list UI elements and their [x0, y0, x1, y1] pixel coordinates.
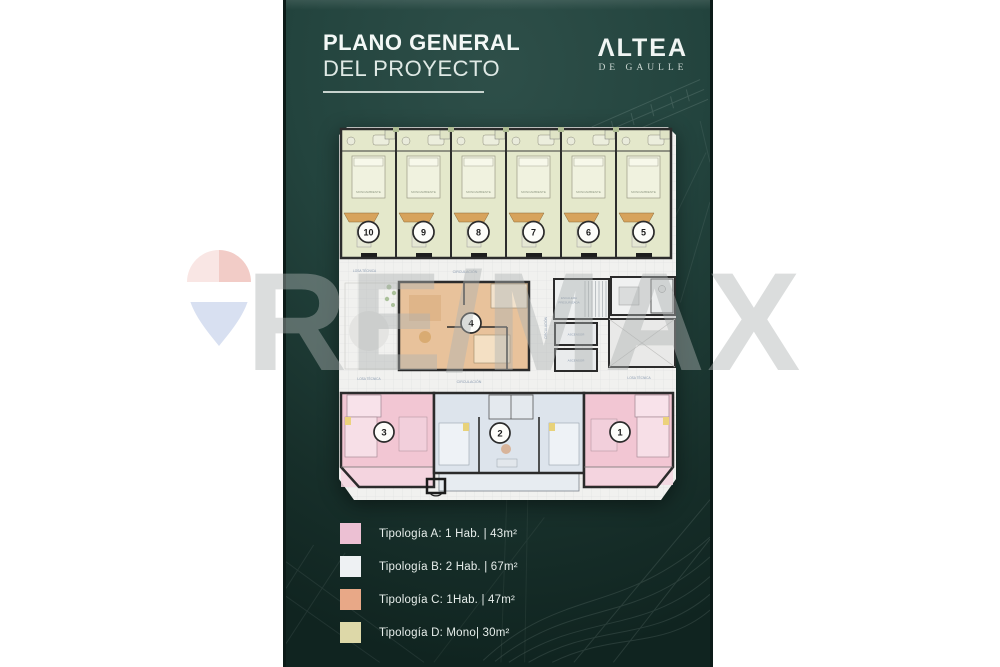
unit-1: 1: [584, 393, 673, 487]
unit-4: 4: [399, 282, 529, 370]
bottom-units-row: 3: [341, 393, 673, 496]
label-losa-tecnica-right: LOSA TÉCNICA: [627, 375, 651, 380]
svg-text:8: 8: [476, 228, 481, 238]
service-rooms: LOSA TÉCNICA: [609, 277, 675, 380]
title-line-1: PLANO GENERAL: [323, 30, 520, 56]
legend-row-d: Tipología D: Mono| 30m²: [340, 622, 518, 643]
legend-swatch-d: [340, 622, 361, 643]
top-units-row: MONOAMBIENTE 10 MONOAMBIENTE: [341, 127, 671, 258]
project-logo: ΛLTEA DE GAULLE: [598, 36, 688, 73]
legend-label-b: Tipología B: 2 Hab. | 67m²: [379, 561, 518, 573]
svg-text:10: 10: [363, 228, 373, 238]
svg-text:6: 6: [586, 228, 591, 238]
svg-text:MONOAMBIENTE: MONOAMBIENTE: [631, 190, 656, 194]
legend-label-c: Tipología C: 1Hab. | 47m²: [379, 594, 515, 606]
title-underline: [323, 91, 484, 93]
legend-swatch-b: [340, 556, 361, 577]
label-losa-tecnica-top: LOSA TÉCNICA: [353, 268, 377, 273]
svg-text:MONOAMBIENTE: MONOAMBIENTE: [411, 190, 436, 194]
label-ascensor-1: ASCENSOR: [568, 333, 586, 337]
svg-text:MONOAMBIENTE: MONOAMBIENTE: [521, 190, 546, 194]
remax-balloon-icon: [179, 242, 259, 348]
svg-text:7: 7: [531, 228, 536, 238]
unit-3: 3: [341, 393, 434, 487]
main-panel: PLANO GENERAL DEL PROYECTO ΛLTEA DE GAUL…: [283, 0, 713, 667]
svg-text:MONOAMBIENTE: MONOAMBIENTE: [576, 190, 601, 194]
label-ascensor-2: ASCENSOR: [568, 359, 586, 363]
label-circulacion-top: CIRCULACIÓN: [453, 269, 478, 274]
legend-row-b: Tipología B: 2 Hab. | 67m²: [340, 556, 518, 577]
unit-2: 2: [434, 393, 584, 491]
svg-text:MONOAMBIENTE: MONOAMBIENTE: [466, 190, 491, 194]
page-title: PLANO GENERAL DEL PROYECTO: [323, 30, 520, 93]
legend-swatch-c: [340, 589, 361, 610]
svg-text:9: 9: [421, 228, 426, 238]
logo-subtitle: DE GAULLE: [598, 63, 688, 73]
label-circulacion-bottom: CIRCULACIÓN: [457, 379, 482, 384]
floor-plan: MONOAMBIENTE 10 MONOAMBIENTE: [339, 127, 676, 500]
svg-text:5: 5: [641, 228, 646, 238]
legend-row-c: Tipología C: 1Hab. | 47m²: [340, 589, 518, 610]
label-losa-tecnica-left: LOSA TÉCNICA: [357, 376, 381, 381]
svg-text:ESCALERA: ESCALERA: [561, 296, 577, 300]
label-circulacion-vertical: CIRCULACIÓN: [543, 316, 548, 339]
svg-text:MONOAMBIENTE: MONOAMBIENTE: [356, 190, 381, 194]
svg-text:4: 4: [468, 319, 474, 330]
svg-text:PRESURIZADA: PRESURIZADA: [558, 301, 579, 305]
typology-legend: Tipología A: 1 Hab. | 43m² Tipología B: …: [340, 523, 518, 655]
legend-label-a: Tipología A: 1 Hab. | 43m²: [379, 528, 517, 540]
logo-name: ΛLTEA: [598, 36, 688, 61]
svg-text:2: 2: [497, 429, 502, 440]
legend-swatch-a: [340, 523, 361, 544]
title-line-2: DEL PROYECTO: [323, 56, 520, 82]
legend-label-d: Tipología D: Mono| 30m²: [379, 627, 510, 639]
legend-row-a: Tipología A: 1 Hab. | 43m²: [340, 523, 518, 544]
svg-text:3: 3: [381, 428, 386, 439]
flyer-page: PLANO GENERAL DEL PROYECTO ΛLTEA DE GAUL…: [0, 0, 1000, 667]
svg-text:1: 1: [617, 428, 623, 439]
